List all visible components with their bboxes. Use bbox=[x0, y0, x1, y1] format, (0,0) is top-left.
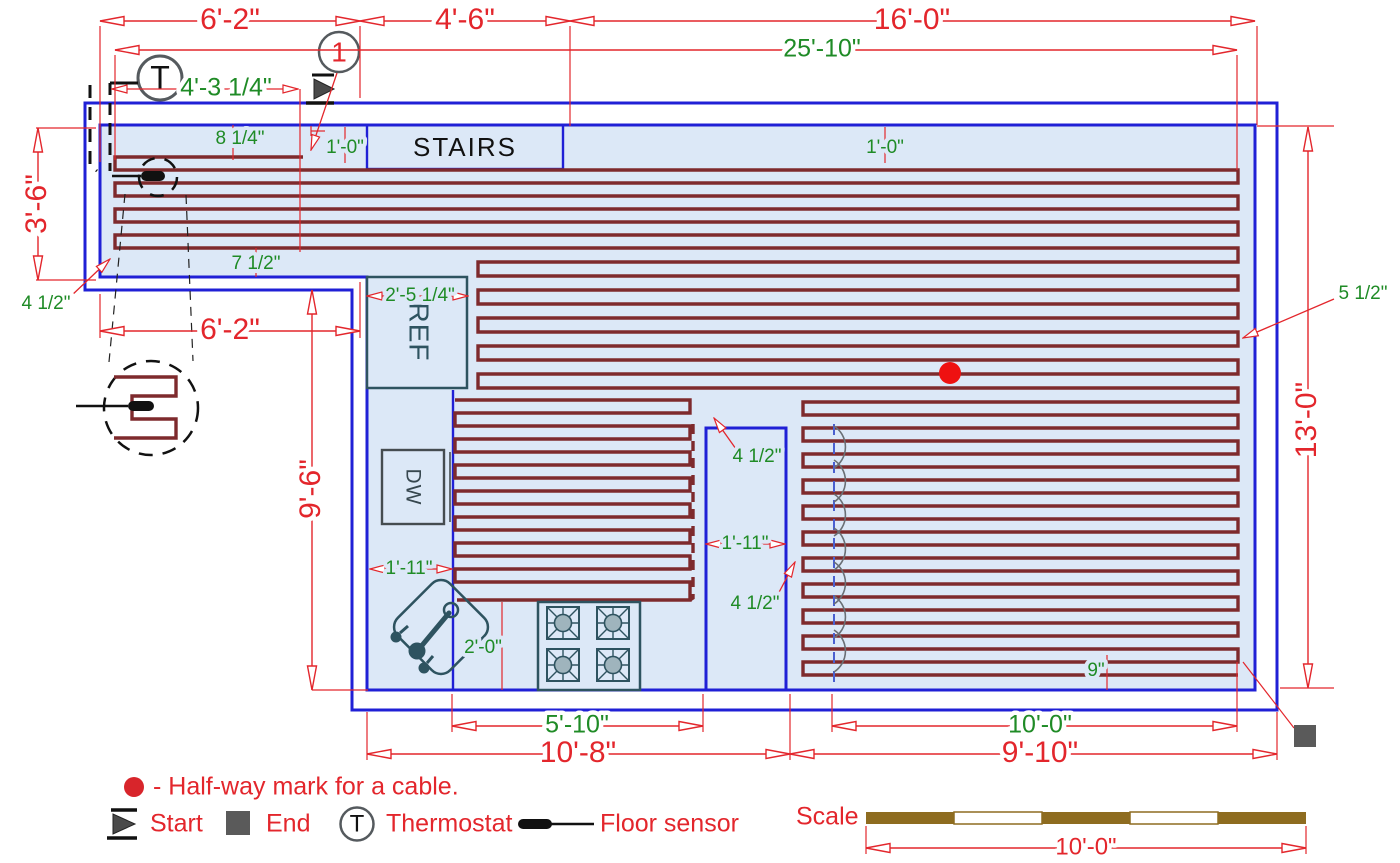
dim-arm-spacing: 7 1/2" bbox=[231, 253, 280, 274]
dim-counter-width: 1'-11" bbox=[386, 558, 433, 579]
dim-bottom-inset: 9" bbox=[1087, 660, 1104, 681]
dim-kitchen-width: 5'-10" bbox=[545, 711, 609, 739]
legend-start-label: Start bbox=[150, 810, 203, 838]
ref-label: REF bbox=[404, 303, 435, 362]
dim-arm-edge: 4 1/2" bbox=[21, 293, 70, 314]
svg-text:T: T bbox=[350, 810, 365, 837]
dim-overall-width: 25'-10" bbox=[783, 35, 861, 63]
dim-top-mid: 4'-6" bbox=[435, 3, 495, 36]
dim-room-offset: 1'-0" bbox=[866, 137, 904, 158]
dim-right-inset: 5 1/2" bbox=[1338, 283, 1387, 304]
fixture-dishwasher: DW bbox=[382, 450, 450, 524]
start-icon bbox=[107, 810, 137, 838]
dim-cable-inset: 8 1/4" bbox=[215, 128, 264, 149]
legend-end-label: End bbox=[266, 810, 310, 838]
dim-top-right: 16'-0" bbox=[874, 3, 950, 36]
thermostat-letter: T bbox=[150, 59, 170, 95]
end-icon bbox=[226, 811, 250, 835]
stove-burner-icon bbox=[547, 649, 579, 681]
legend-halfway-label: - Half-way mark for a cable. bbox=[153, 773, 459, 801]
dim-right-total: 9'-10" bbox=[1002, 736, 1078, 769]
floor-heating-plan: REF DW T 1 bbox=[0, 0, 1400, 858]
dim-left-lower: 6'-2" bbox=[200, 313, 260, 346]
dim-ref-width: 2'-5 1/4" bbox=[385, 285, 455, 306]
scale-bar: Scale 10'-0" bbox=[796, 803, 1306, 858]
dim-arm-height: 3'-6" bbox=[20, 174, 53, 234]
dim-top-left: 6'-2" bbox=[200, 3, 260, 36]
dim-corridor-top: 4 1/2" bbox=[732, 446, 781, 467]
dim-corridor-bottom: 4 1/2" bbox=[730, 593, 779, 614]
scale-length-label: 10'-0" bbox=[1055, 833, 1116, 858]
stairs-label: STAIRS bbox=[413, 132, 517, 162]
stove-burner-icon bbox=[597, 607, 629, 639]
scale-label: Scale bbox=[796, 803, 859, 831]
dim-right-width: 10'-0" bbox=[1008, 711, 1072, 739]
dw-label: DW bbox=[401, 469, 424, 506]
stove-burner-icon bbox=[597, 649, 629, 681]
stove-burner-icon bbox=[547, 607, 579, 639]
dim-sensor-run: 4'-3 1/4" bbox=[180, 74, 271, 102]
halfway-dot-icon bbox=[124, 777, 144, 797]
dim-stove-offset: 2'-0" bbox=[464, 637, 502, 658]
legend-floor-sensor-label: Floor sensor bbox=[600, 810, 739, 838]
dim-kitchen-height: 9'-6" bbox=[294, 459, 327, 519]
legend-thermostat-label: Thermostat bbox=[386, 810, 512, 838]
legend: - Half-way mark for a cable. Start End T… bbox=[107, 773, 739, 841]
dim-stairs-offset: 1'-0" bbox=[326, 137, 364, 158]
floor-sensor-icon bbox=[518, 819, 594, 829]
dim-right-height: 13'-0" bbox=[1290, 382, 1323, 458]
dim-kitchen-total: 10'-8" bbox=[540, 736, 616, 769]
dim-corridor-width: 1'-11" bbox=[722, 533, 769, 554]
cable-number: 1 bbox=[331, 36, 347, 67]
halfway-mark-dot bbox=[939, 362, 961, 384]
floor-plan-svg: REF DW T 1 bbox=[0, 0, 1400, 858]
fixture-stove bbox=[538, 602, 640, 690]
walls bbox=[85, 103, 1277, 710]
thermostat-icon: T bbox=[341, 808, 374, 841]
